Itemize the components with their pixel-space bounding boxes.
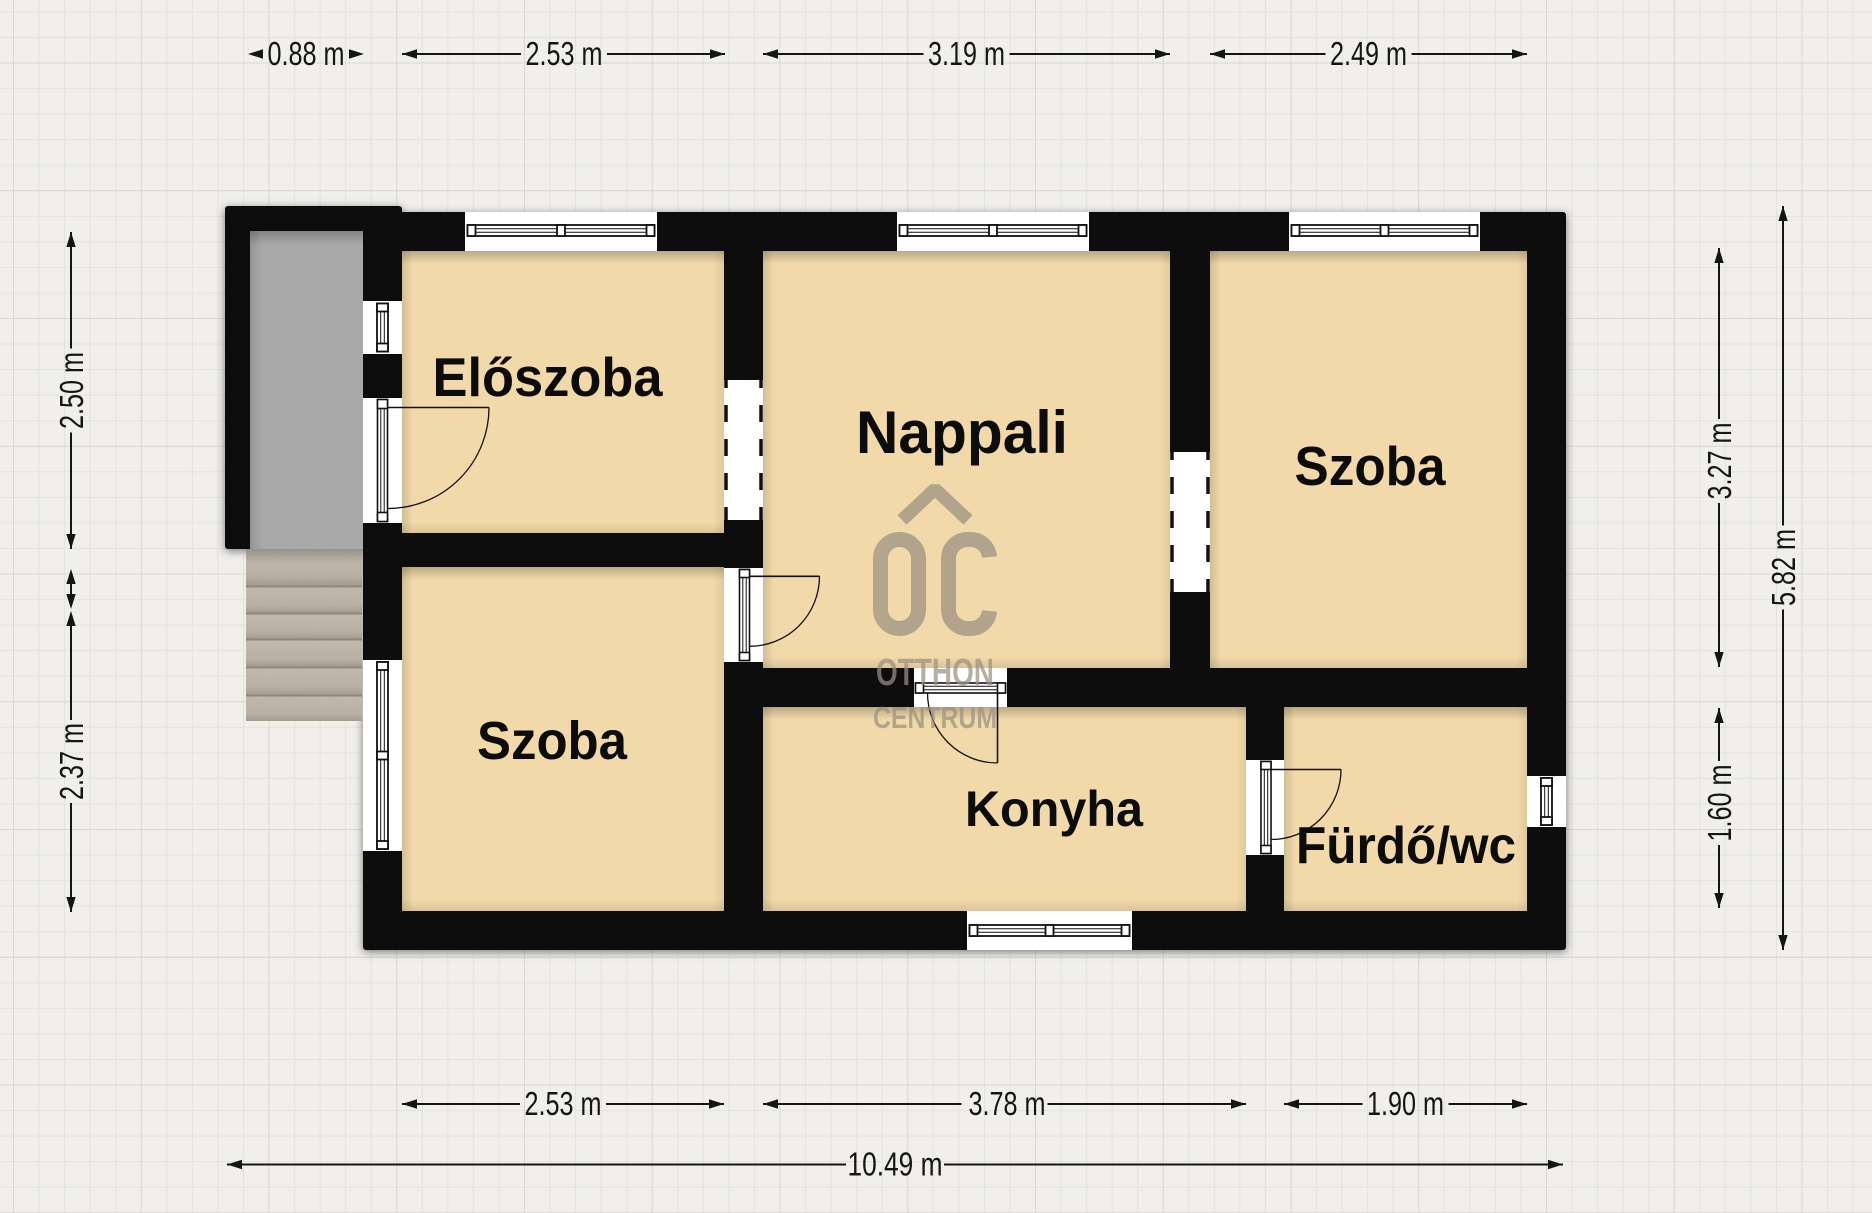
svg-text:0.88 m: 0.88 m xyxy=(268,35,345,72)
svg-text:Előszoba: Előszoba xyxy=(433,346,663,408)
svg-text:3.27 m: 3.27 m xyxy=(1701,423,1738,500)
svg-text:3.78 m: 3.78 m xyxy=(969,1085,1046,1122)
svg-text:1.90 m: 1.90 m xyxy=(1367,1085,1444,1122)
svg-text:2.53 m: 2.53 m xyxy=(526,35,603,72)
svg-text:2.50 m: 2.50 m xyxy=(53,352,90,429)
svg-text:1.60 m: 1.60 m xyxy=(1701,765,1738,842)
svg-text:5.82 m: 5.82 m xyxy=(1765,529,1802,606)
svg-text:3.19 m: 3.19 m xyxy=(928,35,1005,72)
svg-text:2.49 m: 2.49 m xyxy=(1330,35,1407,72)
svg-text:Szoba: Szoba xyxy=(477,711,628,771)
svg-text:Konyha: Konyha xyxy=(965,781,1144,837)
svg-text:OTTHON: OTTHON xyxy=(876,652,994,694)
svg-text:10.49 m: 10.49 m xyxy=(848,1145,943,1182)
svg-text:CENTRUM: CENTRUM xyxy=(873,700,997,735)
svg-text:Szoba: Szoba xyxy=(1295,435,1446,497)
svg-text:Nappali: Nappali xyxy=(856,399,1068,466)
svg-text:2.37 m: 2.37 m xyxy=(53,723,90,800)
svg-text:Fürdő/wc: Fürdő/wc xyxy=(1296,817,1516,875)
svg-text:2.53 m: 2.53 m xyxy=(525,1085,602,1122)
